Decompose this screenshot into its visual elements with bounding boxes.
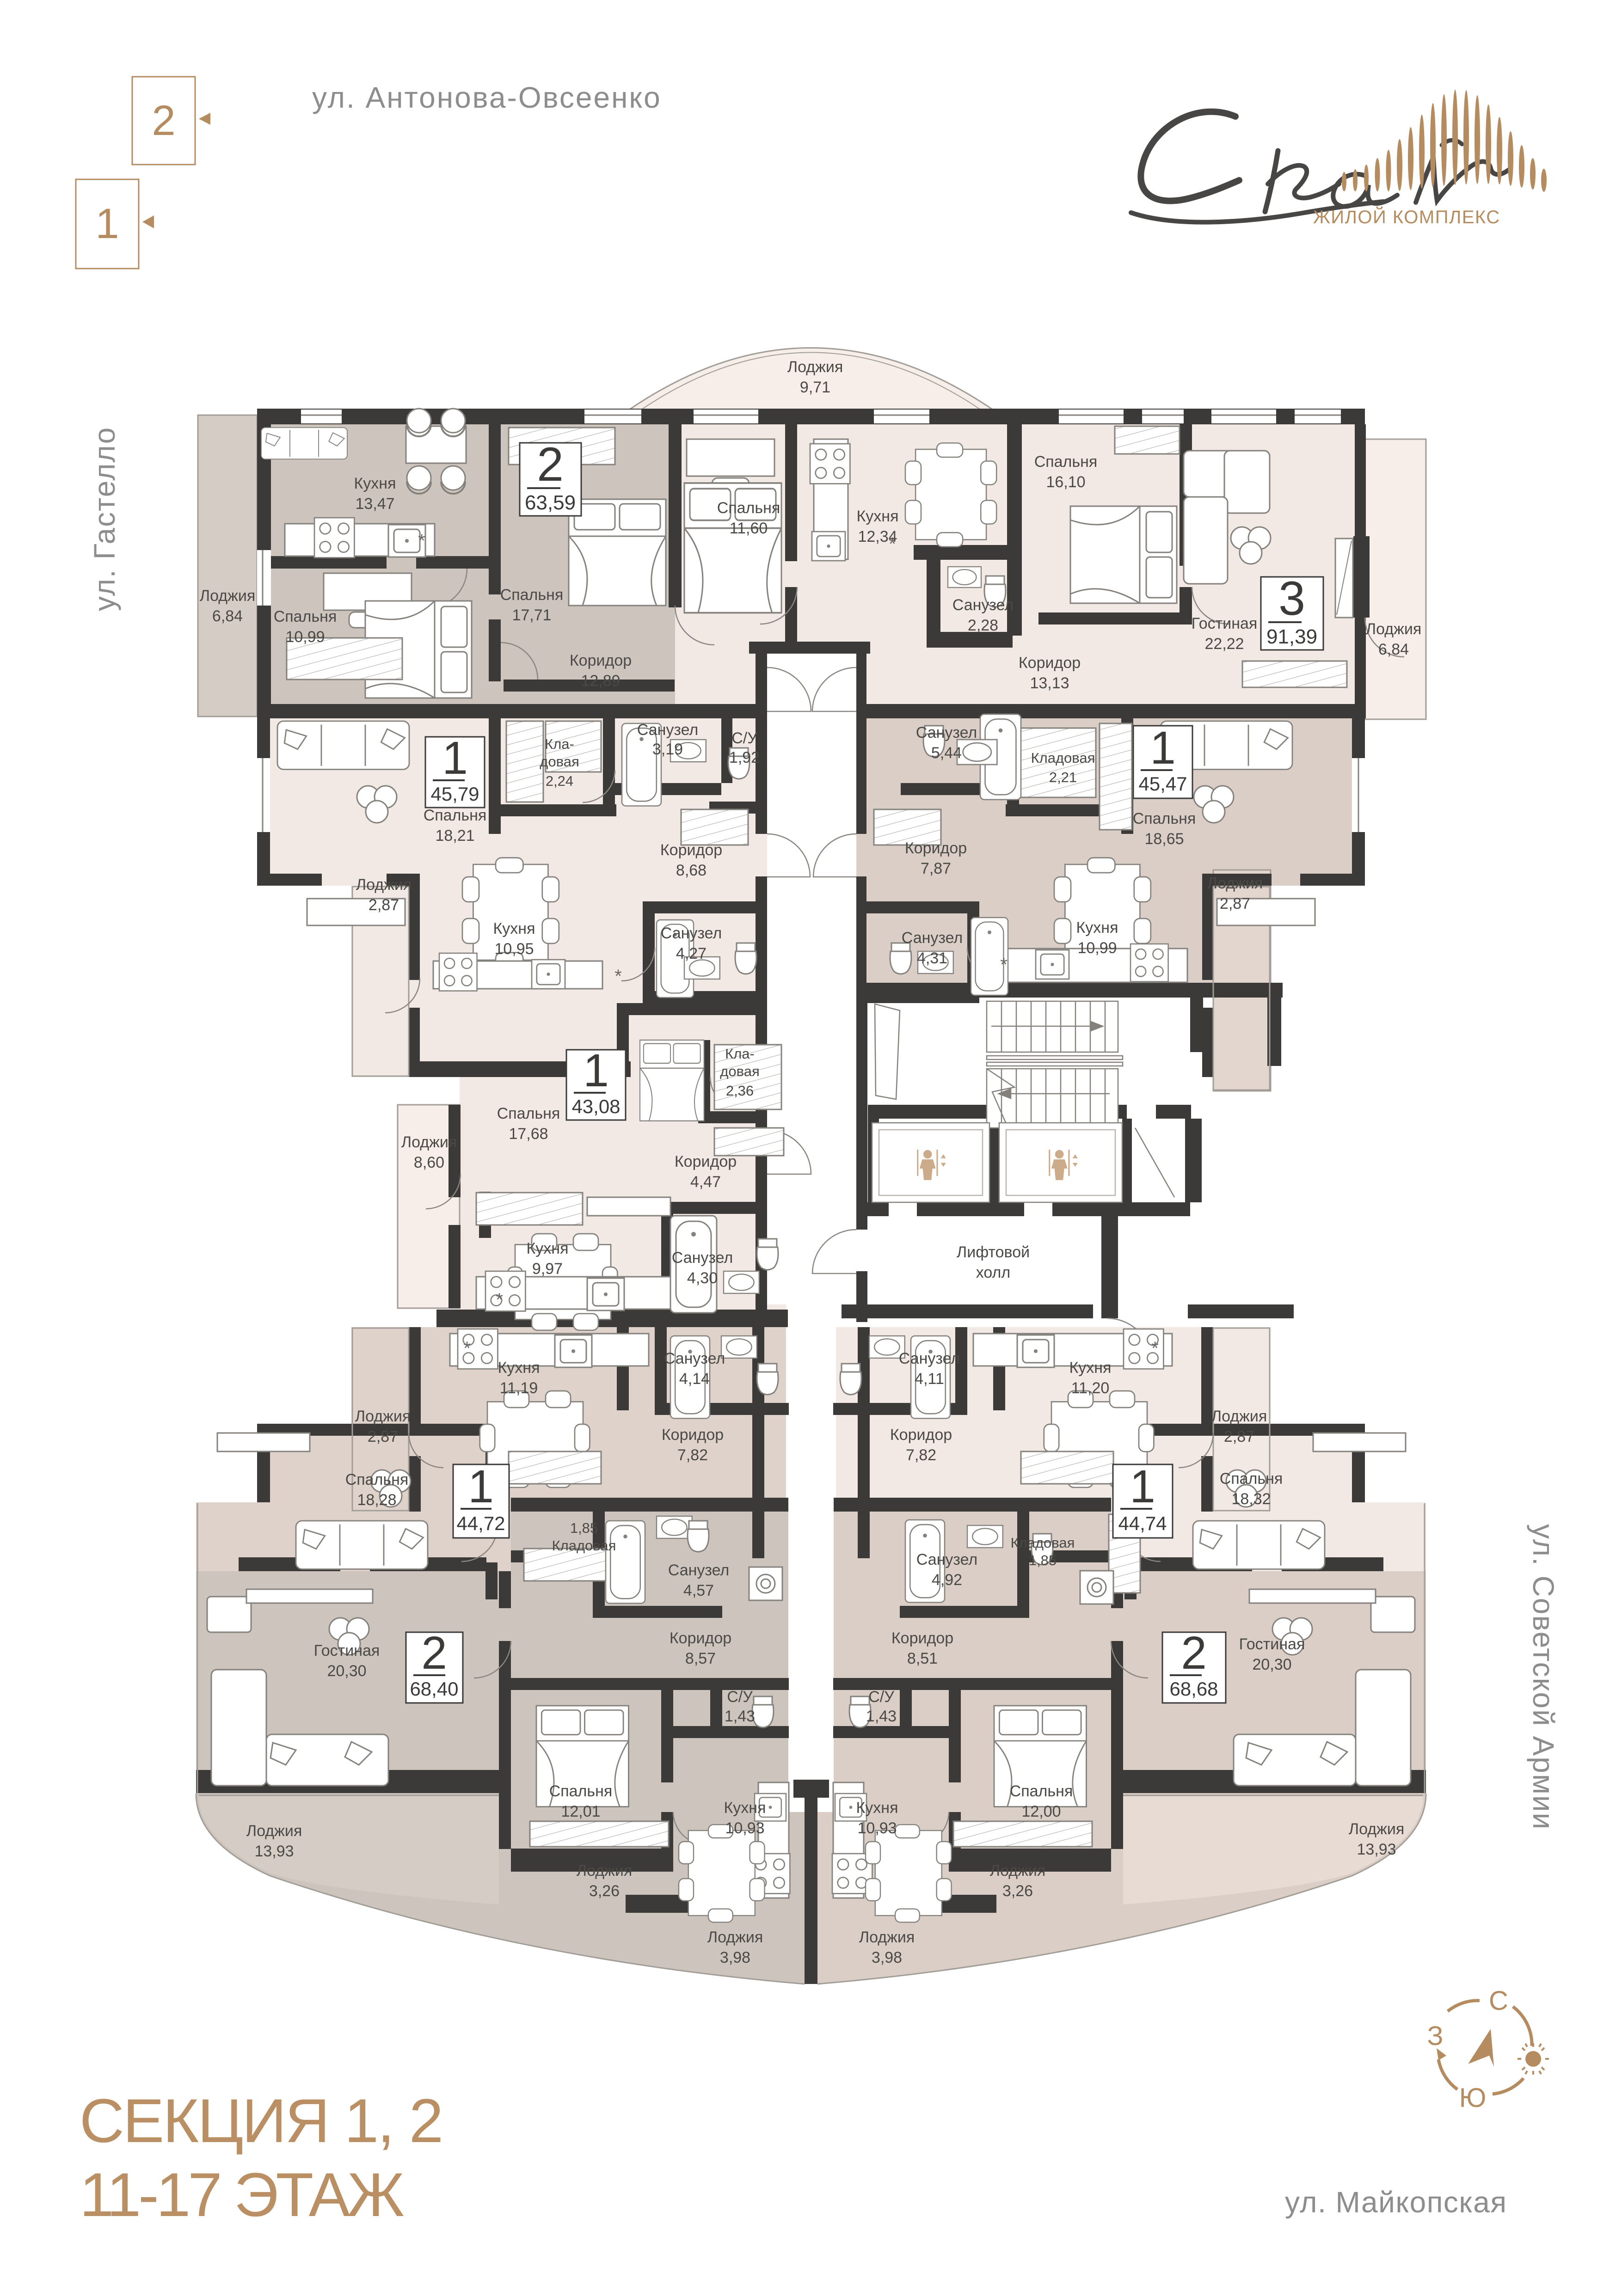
svg-text:1,85: 1,85	[1029, 1552, 1057, 1568]
svg-text:Коридор: Коридор	[890, 1426, 952, 1444]
svg-text:Гостиная: Гостиная	[1239, 1635, 1305, 1653]
svg-text:4,57: 4,57	[683, 1582, 714, 1599]
svg-text:довая: довая	[720, 1063, 759, 1079]
svg-text:1: 1	[95, 200, 119, 247]
svg-text:Лоджия: Лоджия	[200, 587, 255, 605]
svg-text:18,28: 18,28	[357, 1491, 396, 1509]
svg-text:*: *	[418, 531, 425, 551]
svg-text:11,19: 11,19	[500, 1379, 538, 1397]
svg-text:1,43: 1,43	[725, 1708, 755, 1725]
svg-text:1: 1	[1130, 1461, 1155, 1512]
svg-text:2,28: 2,28	[968, 617, 998, 634]
svg-text:63,59: 63,59	[525, 491, 576, 514]
svg-text:6,84: 6,84	[1378, 641, 1409, 658]
svg-text:Спальня: Спальня	[717, 499, 780, 517]
svg-text:Лоджия: Лоджия	[246, 1822, 302, 1840]
svg-text:Коридор: Коридор	[905, 839, 967, 857]
svg-text:17,71: 17,71	[512, 606, 551, 624]
svg-text:44,72: 44,72	[456, 1512, 505, 1534]
svg-text:С/У: С/У	[727, 1688, 753, 1706]
svg-text:Санузел: Санузел	[902, 929, 963, 947]
svg-text:13,13: 13,13	[1030, 674, 1069, 692]
svg-text:Санузел: Санузел	[664, 1350, 725, 1367]
svg-text:Коридор: Коридор	[662, 1426, 724, 1444]
svg-text:Кухня: Кухня	[857, 508, 899, 525]
svg-text:10,95: 10,95	[494, 940, 534, 958]
svg-text:20,30: 20,30	[1252, 1656, 1291, 1673]
svg-text:Кухня: Кухня	[856, 1799, 898, 1817]
svg-text:Коридор: Коридор	[670, 1629, 731, 1647]
svg-text:Санузел: Санузел	[637, 721, 698, 739]
svg-text:91,39: 91,39	[1266, 625, 1317, 648]
svg-text:13,47: 13,47	[355, 495, 394, 513]
svg-text:Кладовая: Кладовая	[1011, 1535, 1075, 1551]
svg-text:4,27: 4,27	[676, 945, 707, 962]
svg-text:Кухня: Кухня	[498, 1359, 540, 1377]
svg-text:4,14: 4,14	[679, 1370, 710, 1388]
svg-text:З: З	[1427, 2021, 1443, 2051]
svg-text:2,87: 2,87	[1220, 895, 1250, 912]
svg-text:Санузел: Санузел	[916, 724, 977, 741]
svg-text:Спальня: Спальня	[497, 1105, 560, 1122]
svg-text:С: С	[1489, 1986, 1508, 2016]
svg-text:ул. Антонова-Овсеенко: ул. Антонова-Овсеенко	[312, 81, 662, 114]
svg-text:12,34: 12,34	[858, 528, 897, 545]
svg-text:Коридор: Коридор	[1019, 654, 1081, 672]
svg-text:*: *	[1000, 955, 1008, 975]
svg-text:2,87: 2,87	[1224, 1428, 1254, 1445]
svg-text:7,82: 7,82	[906, 1446, 936, 1464]
svg-text:8,68: 8,68	[676, 862, 707, 879]
svg-text:2,21: 2,21	[1049, 769, 1077, 785]
svg-text:4,11: 4,11	[915, 1370, 944, 1388]
svg-text:Лоджия: Лоджия	[859, 1929, 915, 1946]
svg-text:3: 3	[1278, 572, 1305, 625]
svg-text:16,10: 16,10	[1046, 473, 1085, 491]
svg-text:Кладовая: Кладовая	[1031, 750, 1095, 766]
svg-text:СЕКЦИЯ 1, 2: СЕКЦИЯ 1, 2	[80, 2087, 442, 2155]
svg-text:Кухня: Кухня	[1069, 1359, 1112, 1377]
svg-text:12,00: 12,00	[1021, 1803, 1061, 1820]
svg-text:3,26: 3,26	[1002, 1882, 1033, 1900]
svg-text:1,92: 1,92	[729, 749, 760, 766]
svg-text:Кухня: Кухня	[527, 1240, 569, 1257]
svg-text:18,65: 18,65	[1144, 830, 1184, 848]
svg-text:*: *	[1151, 1338, 1159, 1359]
svg-text:Гостиная: Гостиная	[314, 1642, 380, 1659]
svg-text:Кухня: Кухня	[1076, 919, 1118, 937]
svg-text:1: 1	[468, 1461, 494, 1512]
svg-text:4,31: 4,31	[917, 949, 947, 967]
svg-text:Спальня: Спальня	[345, 1471, 409, 1488]
svg-text:2: 2	[537, 438, 564, 491]
svg-text:3,19: 3,19	[652, 741, 683, 758]
svg-text:45,79: 45,79	[430, 783, 479, 805]
svg-text:Санузел: Санузел	[668, 1561, 729, 1579]
svg-text:12,89: 12,89	[581, 672, 620, 690]
svg-text:1,43: 1,43	[866, 1708, 897, 1725]
svg-text:2: 2	[1181, 1627, 1207, 1679]
svg-text:18,32: 18,32	[1231, 1490, 1271, 1508]
svg-text:Санузел: Санузел	[661, 925, 722, 942]
svg-text:Коридор: Коридор	[675, 1153, 737, 1170]
svg-text:Спальня: Спальня	[500, 586, 564, 604]
svg-text:17,68: 17,68	[509, 1125, 548, 1143]
svg-text:2: 2	[152, 97, 175, 144]
svg-text:ул. Советской Армии: ул. Советской Армии	[1527, 1524, 1560, 1830]
svg-text:4,30: 4,30	[687, 1269, 718, 1287]
svg-text:18,21: 18,21	[435, 827, 474, 845]
svg-text:4,47: 4,47	[690, 1173, 721, 1191]
svg-text:Коридор: Коридор	[891, 1629, 953, 1647]
svg-text:Санузел: Санузел	[952, 596, 1014, 614]
svg-text:Спальня: Спальня	[1010, 1782, 1073, 1800]
svg-text:45,47: 45,47	[1138, 773, 1187, 795]
svg-text:2,87: 2,87	[368, 1428, 398, 1445]
svg-text:10,99: 10,99	[285, 628, 325, 646]
svg-text:68,68: 68,68	[1169, 1678, 1218, 1700]
svg-text:8,60: 8,60	[414, 1154, 444, 1171]
svg-text:Ю: Ю	[1459, 2083, 1487, 2113]
svg-text:С/У: С/У	[731, 729, 757, 747]
svg-text:Лоджия: Лоджия	[1207, 875, 1263, 892]
svg-text:С/У: С/У	[868, 1688, 894, 1706]
svg-text:*: *	[496, 1290, 503, 1310]
svg-text:Кла-: Кла-	[725, 1046, 755, 1062]
svg-text:Кла-: Кла-	[545, 736, 574, 752]
svg-text:Лоджия: Лоджия	[990, 1862, 1045, 1880]
svg-text:Спальня: Спальня	[424, 807, 487, 824]
svg-text:Лоджия: Лоджия	[787, 358, 843, 376]
svg-text:13,93: 13,93	[1357, 1841, 1396, 1858]
svg-text:2,36: 2,36	[726, 1083, 754, 1099]
svg-text:довая: довая	[540, 753, 579, 770]
svg-text:3,26: 3,26	[589, 1882, 620, 1900]
svg-text:Спальня: Спальня	[1133, 810, 1196, 827]
svg-text:Спальня: Спальня	[1220, 1470, 1283, 1488]
svg-text:6,84: 6,84	[212, 607, 243, 625]
svg-text:44,74: 44,74	[1118, 1512, 1167, 1534]
svg-text:22,22: 22,22	[1204, 635, 1244, 653]
svg-text:Кухня: Кухня	[724, 1799, 766, 1817]
svg-text:13,93: 13,93	[254, 1843, 294, 1860]
svg-text:2,24: 2,24	[546, 773, 573, 789]
svg-text:Лоджия: Лоджия	[356, 876, 412, 894]
svg-text:3,98: 3,98	[720, 1949, 750, 1966]
svg-text:3,98: 3,98	[872, 1949, 902, 1966]
svg-text:Кухня: Кухня	[354, 475, 396, 492]
svg-text:68,40: 68,40	[410, 1678, 458, 1700]
svg-text:холл: холл	[976, 1264, 1010, 1281]
svg-text:*: *	[463, 1338, 471, 1359]
svg-text:Спальня: Спальня	[1034, 453, 1098, 471]
svg-text:Кухня: Кухня	[493, 920, 535, 937]
svg-text:*: *	[614, 966, 622, 986]
svg-text:Санузел: Санузел	[899, 1350, 960, 1367]
svg-text:12,01: 12,01	[561, 1803, 600, 1820]
svg-text:Лоджия: Лоджия	[1211, 1408, 1267, 1425]
svg-text:Спальня: Спальня	[274, 608, 337, 625]
svg-text:20,30: 20,30	[327, 1662, 366, 1680]
svg-text:7,82: 7,82	[677, 1446, 708, 1464]
svg-text:7,87: 7,87	[921, 860, 951, 877]
svg-text:9,97: 9,97	[532, 1260, 563, 1278]
svg-text:Санузел: Санузел	[916, 1551, 977, 1568]
svg-text:10,93: 10,93	[857, 1819, 897, 1837]
svg-text:Лоджия: Лоджия	[401, 1133, 457, 1151]
svg-text:2: 2	[421, 1627, 447, 1679]
svg-text:2,87: 2,87	[369, 896, 399, 914]
svg-text:8,57: 8,57	[685, 1650, 716, 1667]
svg-text:ул. Майкопская: ул. Майкопская	[1285, 2186, 1507, 2219]
svg-text:1: 1	[442, 732, 468, 784]
svg-text:ЖИЛОЙ КОМПЛЕКС: ЖИЛОЙ КОМПЛЕКС	[1313, 206, 1500, 227]
svg-text:11,20: 11,20	[1071, 1379, 1110, 1397]
svg-text:ул. Гастелло: ул. Гастелло	[88, 427, 121, 611]
svg-text:Санузел: Санузел	[672, 1249, 733, 1267]
svg-text:1: 1	[583, 1045, 609, 1096]
svg-text:Кладовая: Кладовая	[552, 1537, 616, 1554]
svg-text:1: 1	[1150, 722, 1176, 774]
svg-text:Коридор: Коридор	[660, 841, 722, 859]
svg-text:11-17 ЭТАЖ: 11-17 ЭТАЖ	[80, 2161, 404, 2229]
svg-text:10,93: 10,93	[725, 1819, 764, 1837]
svg-text:Коридор: Коридор	[570, 652, 632, 669]
svg-text:11,60: 11,60	[730, 520, 768, 537]
svg-text:Лифтовой: Лифтовой	[957, 1243, 1030, 1261]
svg-text:Спальня: Спальня	[549, 1782, 613, 1800]
svg-text:Лоджия: Лоджия	[355, 1408, 411, 1425]
svg-text:Лоджия: Лоджия	[1349, 1820, 1404, 1838]
svg-text:8,51: 8,51	[907, 1650, 938, 1667]
svg-text:9,71: 9,71	[800, 379, 830, 396]
svg-text:43,08: 43,08	[571, 1096, 620, 1117]
svg-text:Гостиная: Гостиная	[1192, 615, 1258, 632]
svg-text:Лоджия: Лоджия	[707, 1929, 763, 1946]
svg-text:5,44: 5,44	[931, 744, 962, 762]
svg-text:4,92: 4,92	[932, 1571, 962, 1589]
svg-text:Лоджия: Лоджия	[577, 1862, 632, 1880]
svg-text:1,85: 1,85	[570, 1520, 598, 1536]
svg-text:10,99: 10,99	[1077, 939, 1117, 957]
svg-text:Лоджия: Лоджия	[1366, 620, 1421, 638]
